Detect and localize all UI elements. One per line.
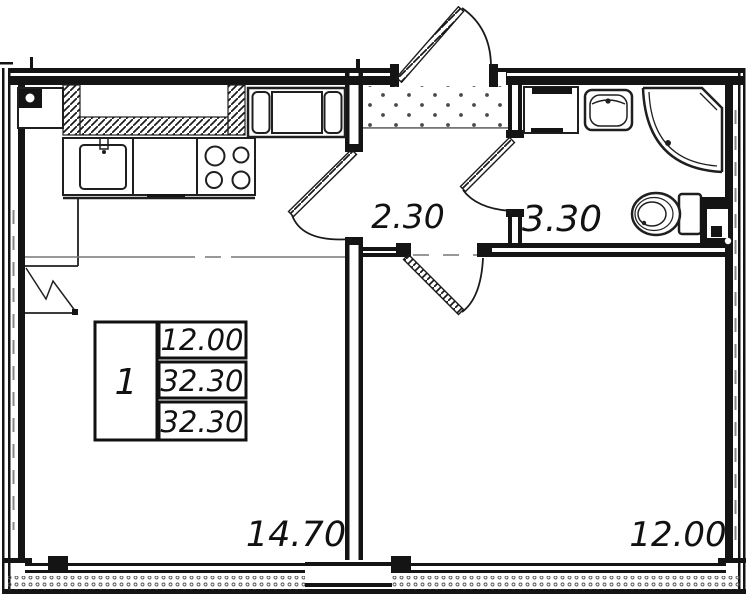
floor-plan-drawing: 2.30 3.30 14.70 12.00 1 12.00 32.30 32.3… xyxy=(0,0,750,600)
info-table-value-2: 32.30 xyxy=(160,364,243,398)
wardrobe xyxy=(248,88,345,137)
bedroom-area-label: 12.00 xyxy=(629,515,726,555)
vent-shaft-bathroom xyxy=(700,197,733,247)
toilet xyxy=(632,193,701,235)
wall-pier xyxy=(305,559,392,589)
window-sill-hatch xyxy=(390,576,740,590)
tick-mark xyxy=(356,59,360,70)
entry-mat-edge xyxy=(363,127,508,129)
tick-mark xyxy=(0,62,13,65)
info-table-value-1: 12.00 xyxy=(160,323,243,357)
floor-plan: 2.30 3.30 14.70 12.00 1 12.00 32.30 32.3… xyxy=(0,0,750,600)
window-sill-hatch xyxy=(8,576,306,590)
window-mullion xyxy=(391,556,411,573)
info-table-rooms-count: 1 xyxy=(115,362,138,403)
vent-shaft-kitchen xyxy=(18,88,63,128)
entry-floor xyxy=(363,86,508,129)
hallway-area-label: 2.30 xyxy=(371,197,444,236)
wash-basin xyxy=(585,90,632,130)
washing-machine xyxy=(524,87,578,133)
info-table: 1 12.00 32.30 32.30 xyxy=(95,322,246,440)
entry-mat-stipple xyxy=(363,86,508,128)
window-mullion xyxy=(48,556,68,573)
kitchen-living-area-label: 14.70 xyxy=(246,515,346,555)
tick-mark xyxy=(30,57,33,72)
info-table-value-3: 32.30 xyxy=(160,405,243,439)
bathroom-area-label: 3.30 xyxy=(522,199,602,240)
